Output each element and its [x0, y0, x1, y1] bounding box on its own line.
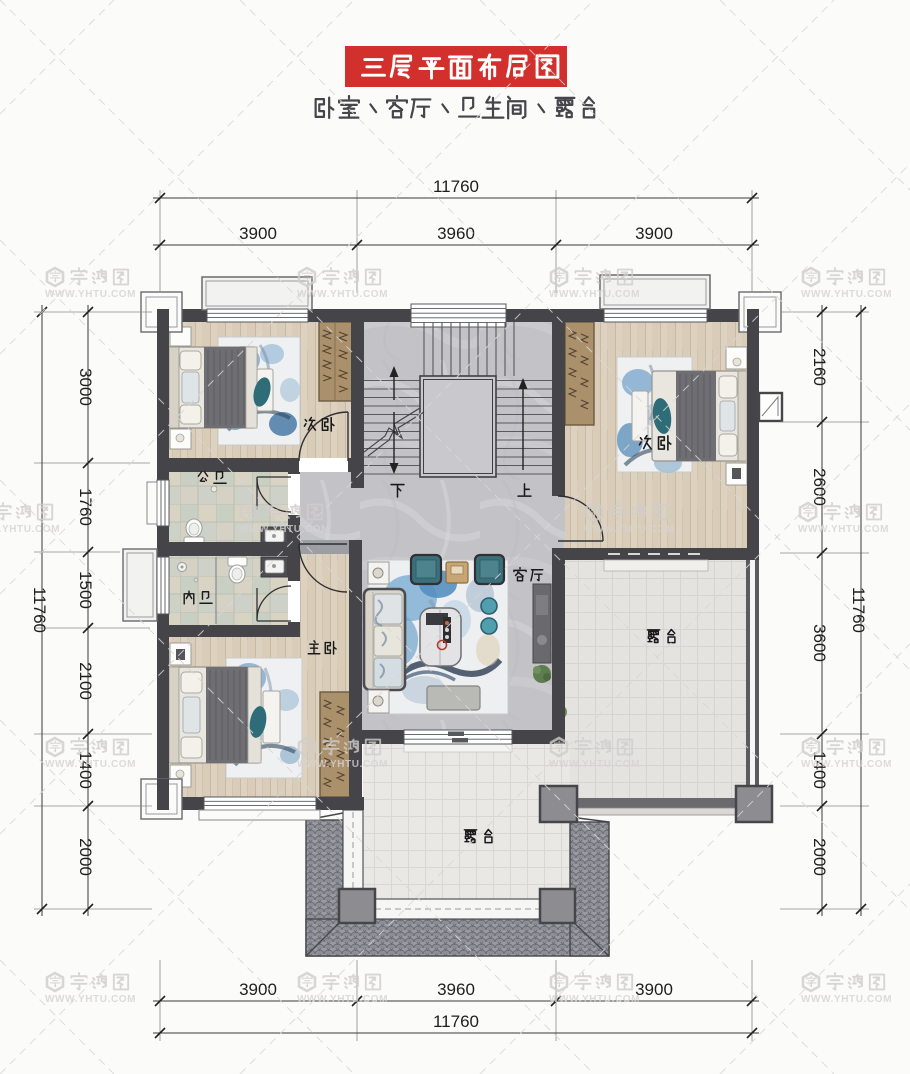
- svg-text:2160: 2160: [810, 348, 829, 386]
- svg-text:2000: 2000: [810, 838, 829, 876]
- svg-text:3900: 3900: [635, 980, 673, 999]
- svg-text:11760: 11760: [849, 587, 868, 633]
- svg-text:3600: 3600: [810, 624, 829, 662]
- svg-text:2600: 2600: [810, 468, 829, 506]
- svg-text:3900: 3900: [635, 224, 673, 243]
- svg-text:3900: 3900: [239, 224, 277, 243]
- svg-text:1500: 1500: [76, 571, 95, 609]
- svg-text:2100: 2100: [76, 662, 95, 700]
- svg-text:3000: 3000: [76, 368, 95, 406]
- svg-text:2000: 2000: [76, 838, 95, 876]
- svg-text:3900: 3900: [239, 980, 277, 999]
- svg-text:11760: 11760: [433, 1012, 479, 1031]
- svg-text:1400: 1400: [76, 751, 95, 789]
- svg-text:11760: 11760: [433, 177, 479, 196]
- svg-text:3960: 3960: [437, 980, 475, 999]
- svg-text:3960: 3960: [437, 224, 475, 243]
- svg-text:1400: 1400: [810, 751, 829, 789]
- svg-text:1760: 1760: [76, 488, 95, 526]
- svg-text:11760: 11760: [30, 587, 49, 633]
